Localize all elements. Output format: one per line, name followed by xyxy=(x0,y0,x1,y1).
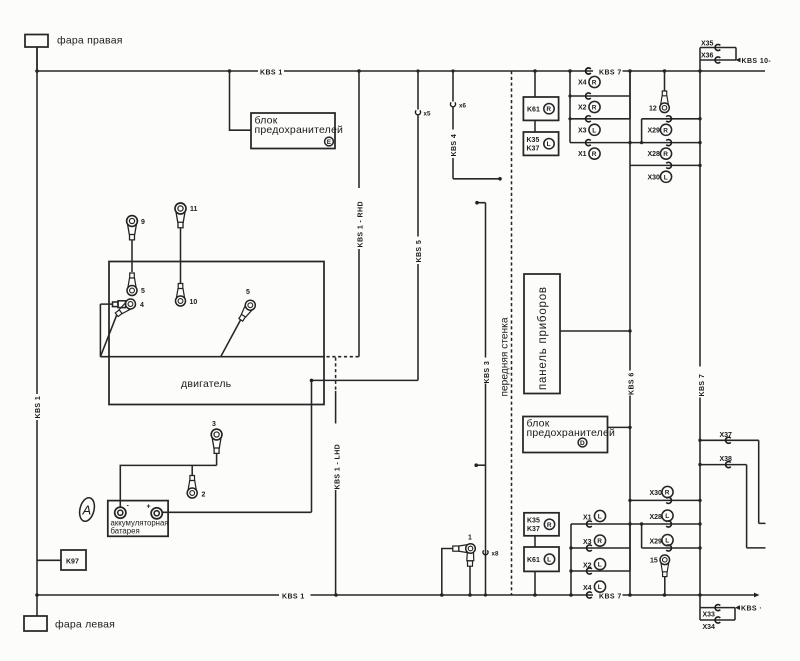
svg-text:KBS 3: KBS 3 xyxy=(484,361,491,384)
svg-text:L: L xyxy=(665,513,669,520)
svg-text:R: R xyxy=(592,105,597,112)
svg-text:KBS 6: KBS 6 xyxy=(629,372,636,395)
svg-text:K35: K35 xyxy=(527,517,540,524)
svg-text:X3: X3 xyxy=(578,127,587,134)
svg-text:L: L xyxy=(547,141,551,148)
svg-text:X28: X28 xyxy=(648,151,661,158)
svg-text:KBS 7: KBS 7 xyxy=(599,594,622,601)
svg-text:5: 5 xyxy=(141,288,145,295)
svg-text:x5: x5 xyxy=(424,110,431,117)
svg-text:R: R xyxy=(547,522,552,529)
svg-text:KBS 1 - RHD: KBS 1 - RHD xyxy=(358,201,365,247)
svg-text:X3: X3 xyxy=(583,539,592,546)
svg-text:X38: X38 xyxy=(720,456,733,463)
svg-text:15: 15 xyxy=(650,558,658,565)
svg-text:X34: X34 xyxy=(703,624,716,631)
svg-text:KBS 7: KBS 7 xyxy=(599,70,622,77)
svg-text:R: R xyxy=(663,151,668,158)
svg-text:X30: X30 xyxy=(648,174,661,181)
svg-text:K97: K97 xyxy=(66,559,79,566)
svg-text:X1: X1 xyxy=(578,151,587,158)
svg-text:12: 12 xyxy=(649,106,657,113)
svg-text:L: L xyxy=(664,174,668,181)
svg-text:фара левая: фара левая xyxy=(55,619,115,631)
svg-text:A: A xyxy=(82,503,92,518)
svg-text:5: 5 xyxy=(246,289,250,296)
svg-text:x6: x6 xyxy=(459,102,466,109)
svg-text:предохранителей: предохранителей xyxy=(255,124,344,136)
svg-text:K37: K37 xyxy=(527,145,540,152)
svg-text:KBS 1: KBS 1 xyxy=(260,70,283,77)
svg-text:батарея: батарея xyxy=(111,527,140,536)
svg-text:K61: K61 xyxy=(527,107,540,114)
svg-text:+: + xyxy=(147,504,151,511)
svg-text:4: 4 xyxy=(140,302,144,309)
svg-text:KBS 1: KBS 1 xyxy=(282,594,305,601)
svg-text:X4: X4 xyxy=(578,80,587,87)
svg-text:X30: X30 xyxy=(650,490,663,497)
svg-text:E: E xyxy=(327,139,332,146)
svg-text:R: R xyxy=(546,106,551,113)
svg-text:x8: x8 xyxy=(492,550,499,557)
svg-text:R: R xyxy=(592,151,597,158)
svg-text:X33: X33 xyxy=(703,612,716,619)
svg-text:X1: X1 xyxy=(583,515,592,522)
svg-text:10: 10 xyxy=(190,299,198,306)
svg-text:L: L xyxy=(592,127,596,134)
svg-text:KBS 5: KBS 5 xyxy=(416,240,423,263)
svg-text:передняя стенка: передняя стенка xyxy=(500,317,511,396)
svg-text:K37: K37 xyxy=(527,526,540,533)
svg-text:X28: X28 xyxy=(650,514,663,521)
svg-text:L: L xyxy=(598,584,602,591)
svg-text:KBS 10-: KBS 10- xyxy=(742,58,772,65)
svg-text:X35: X35 xyxy=(701,41,714,48)
svg-text:R: R xyxy=(665,490,670,497)
svg-text:двигатель: двигатель xyxy=(181,378,232,390)
svg-text:X4: X4 xyxy=(583,585,592,592)
svg-text:X36: X36 xyxy=(701,53,714,60)
svg-text:KBS 1: KBS 1 xyxy=(35,396,42,419)
svg-text:KBS ·: KBS · xyxy=(741,605,762,612)
svg-text:панель приборов: панель приборов xyxy=(537,286,549,390)
svg-text:L: L xyxy=(665,538,669,545)
svg-text:11: 11 xyxy=(190,206,198,213)
svg-text:1: 1 xyxy=(468,535,472,542)
svg-text:R: R xyxy=(597,538,602,545)
svg-text:KBS 7: KBS 7 xyxy=(699,374,706,397)
svg-text:KBS 4: KBS 4 xyxy=(451,134,458,157)
svg-text:X2: X2 xyxy=(578,105,587,112)
svg-text:предохранителей: предохранителей xyxy=(527,427,616,439)
svg-text:R: R xyxy=(592,80,597,87)
svg-text:3: 3 xyxy=(212,421,216,428)
svg-text:2: 2 xyxy=(202,492,206,499)
svg-text:L: L xyxy=(598,514,602,521)
svg-text:K35: K35 xyxy=(527,137,540,144)
svg-text:9: 9 xyxy=(141,219,145,226)
svg-text:KBS 1 - LHD: KBS 1 - LHD xyxy=(335,444,342,490)
svg-text:фара правая: фара правая xyxy=(57,35,123,47)
svg-text:X37: X37 xyxy=(720,432,733,439)
svg-text:X29: X29 xyxy=(648,127,661,134)
svg-text:K61: K61 xyxy=(527,557,540,564)
svg-text:X29: X29 xyxy=(650,539,663,546)
svg-text:L: L xyxy=(547,557,551,564)
svg-text:D: D xyxy=(580,440,585,447)
svg-text:X2: X2 xyxy=(583,563,592,570)
svg-text:L: L xyxy=(598,562,602,569)
svg-text:R: R xyxy=(663,127,668,134)
